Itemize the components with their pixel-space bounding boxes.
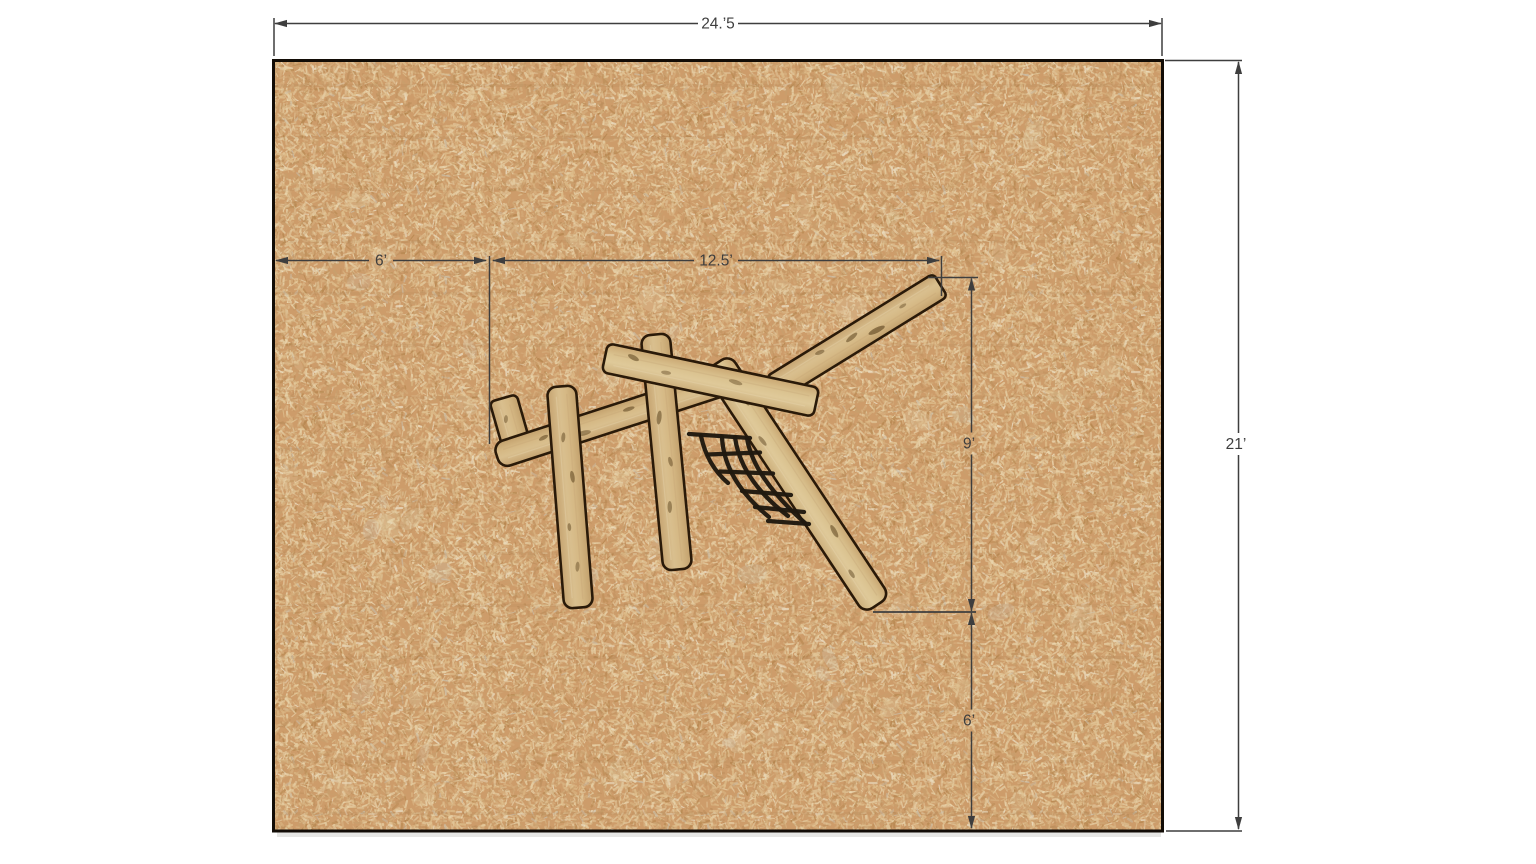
svg-text:12.5’: 12.5’ bbox=[699, 253, 733, 270]
svg-text:9’: 9’ bbox=[963, 436, 975, 453]
svg-text:24.’5: 24.’5 bbox=[701, 16, 735, 33]
svg-text:21’: 21’ bbox=[1226, 436, 1247, 453]
svg-text:6’: 6’ bbox=[963, 713, 975, 730]
svg-text:6’: 6’ bbox=[375, 253, 387, 270]
